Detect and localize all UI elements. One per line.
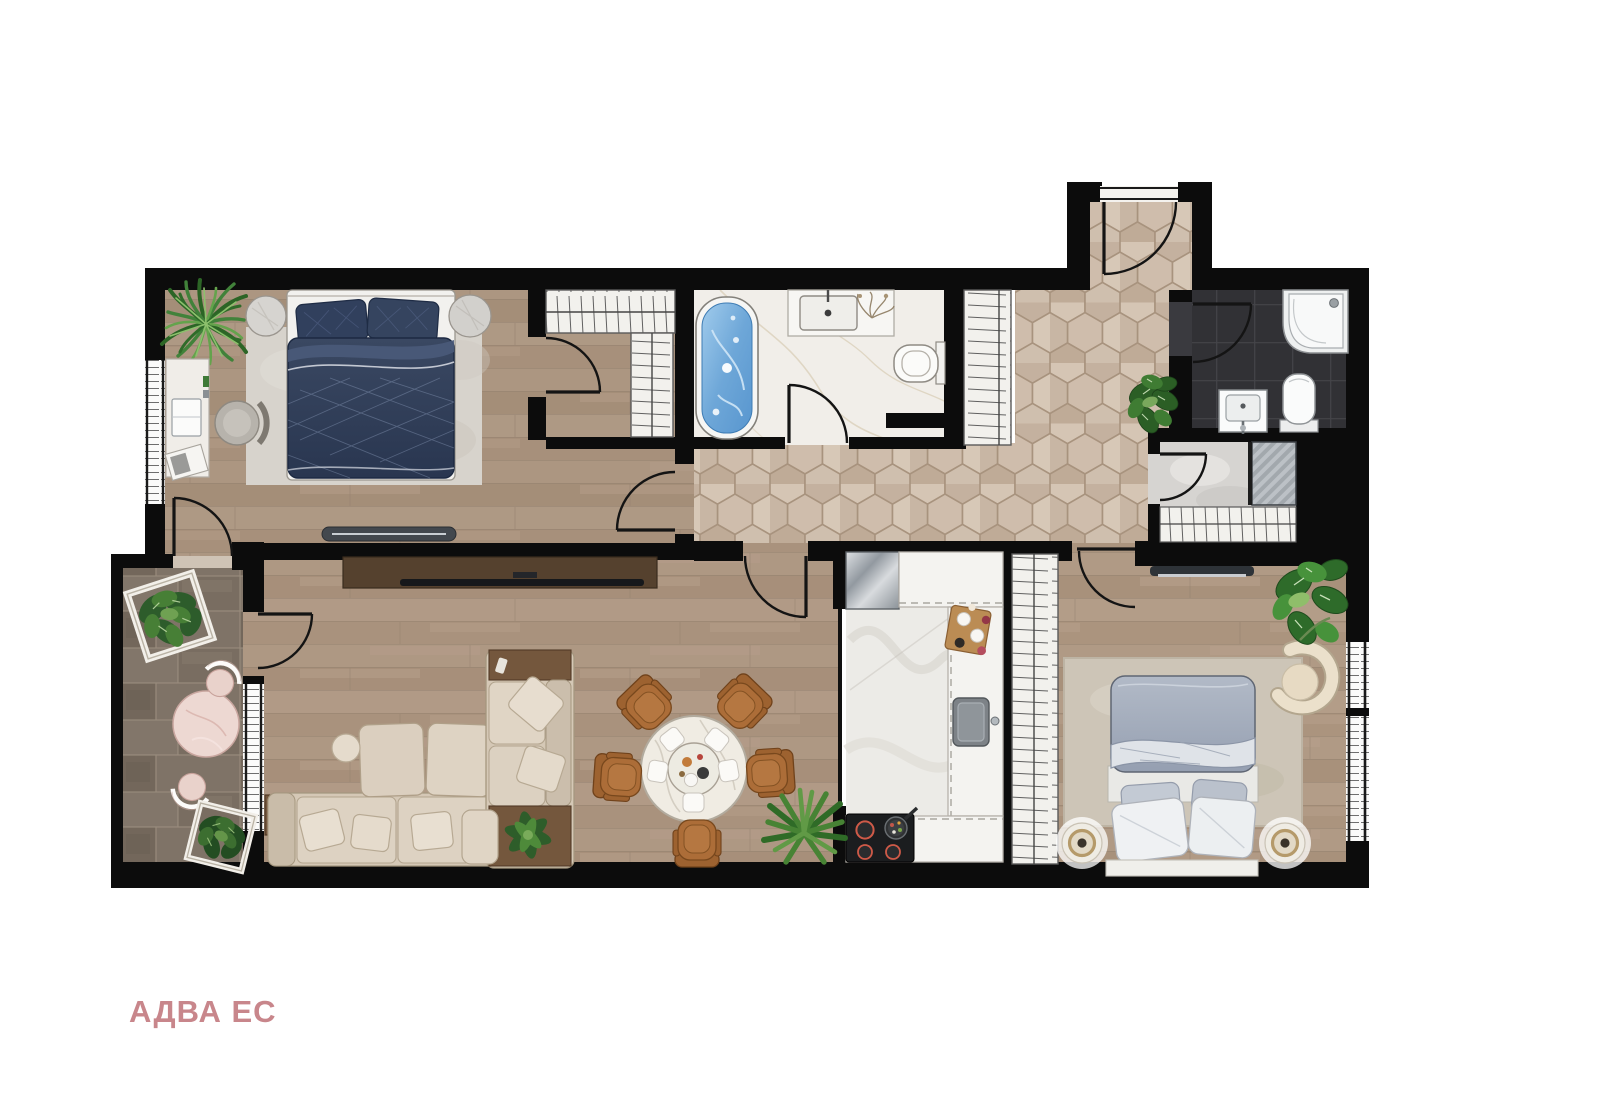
svg-text:АДВА ЕС: АДВА ЕС (129, 994, 277, 1029)
